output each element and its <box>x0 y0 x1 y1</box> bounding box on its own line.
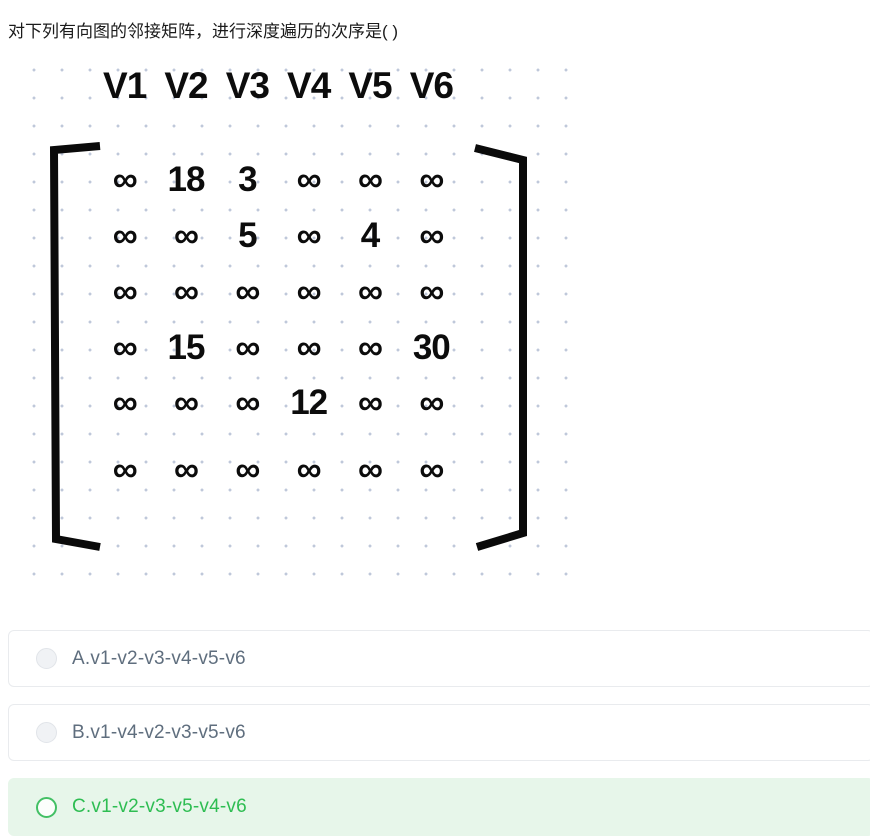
matrix-cell: ∞ <box>94 326 155 370</box>
matrix-cell: 15 <box>155 326 216 370</box>
matrix-cell: ∞ <box>339 158 400 202</box>
matrix-cell: ∞ <box>401 158 462 202</box>
matrix-row: ∞ ∞ ∞ ∞ ∞ ∞ <box>94 448 462 492</box>
radio-correct-icon[interactable] <box>36 797 57 818</box>
matrix-cell: ∞ <box>339 326 400 370</box>
matrix-cell: ∞ <box>339 381 400 425</box>
option-a-label: A.v1-v2-v3-v4-v5-v6 <box>72 648 246 670</box>
matrix-cell: ∞ <box>401 381 462 425</box>
matrix-cell: ∞ <box>278 326 339 370</box>
matrix-row: ∞ ∞ ∞ 12 ∞ ∞ <box>94 381 462 425</box>
matrix-cell: ∞ <box>278 158 339 202</box>
matrix-row: ∞ 18 3 ∞ ∞ ∞ <box>94 158 462 202</box>
right-bracket <box>475 148 523 547</box>
matrix-cell: 5 <box>217 214 278 258</box>
matrix-cell: ∞ <box>155 448 216 492</box>
matrix-row: ∞ 15 ∞ ∞ ∞ 30 <box>94 326 462 370</box>
matrix-cell: ∞ <box>278 270 339 314</box>
question-title: 对下列有向图的邻接矩阵，进行深度遍历的次序是( ) <box>8 20 398 44</box>
option-c-label: C.v1-v2-v3-v5-v4-v6 <box>72 796 247 818</box>
option-b-label: B.v1-v4-v2-v3-v5-v6 <box>72 722 246 744</box>
matrix-cell: ∞ <box>155 214 216 258</box>
matrix-brackets <box>14 55 578 588</box>
matrix-cell: ∞ <box>217 381 278 425</box>
matrix-cell: ∞ <box>94 270 155 314</box>
matrix-cell: 4 <box>339 214 400 258</box>
matrix-cell: ∞ <box>401 448 462 492</box>
matrix-cell: ∞ <box>155 270 216 314</box>
matrix-cell: ∞ <box>155 381 216 425</box>
matrix-cell: ∞ <box>339 448 400 492</box>
matrix-cell: 30 <box>401 326 462 370</box>
matrix-cell: ∞ <box>401 214 462 258</box>
matrix-cell: ∞ <box>217 326 278 370</box>
matrix-cell: ∞ <box>94 214 155 258</box>
matrix-row: ∞ ∞ ∞ ∞ ∞ ∞ <box>94 270 462 314</box>
matrix-cell: ∞ <box>278 448 339 492</box>
option-c-correct[interactable]: C.v1-v2-v3-v5-v4-v6 <box>8 778 870 836</box>
matrix-row: ∞ ∞ 5 ∞ 4 ∞ <box>94 214 462 258</box>
radio-unselected-icon[interactable] <box>36 722 57 743</box>
matrix-cell: ∞ <box>278 214 339 258</box>
matrix-cell: ∞ <box>339 270 400 314</box>
radio-unselected-icon[interactable] <box>36 648 57 669</box>
option-a[interactable]: A.v1-v2-v3-v4-v5-v6 <box>8 630 870 687</box>
matrix-cell: 18 <box>155 158 216 202</box>
matrix-cell: 12 <box>278 381 339 425</box>
matrix-cell: 3 <box>217 158 278 202</box>
matrix-cell: ∞ <box>94 381 155 425</box>
matrix-cell: ∞ <box>94 158 155 202</box>
matrix-cell: ∞ <box>217 448 278 492</box>
matrix-cell: ∞ <box>217 270 278 314</box>
adjacency-matrix-figure: V1 V2 V3 V4 V5 V6 ∞ 18 3 ∞ ∞ ∞ ∞ ∞ 5 ∞ 4… <box>14 55 578 588</box>
matrix-cell: ∞ <box>94 448 155 492</box>
option-b[interactable]: B.v1-v4-v2-v3-v5-v6 <box>8 704 870 761</box>
matrix-cell: ∞ <box>401 270 462 314</box>
